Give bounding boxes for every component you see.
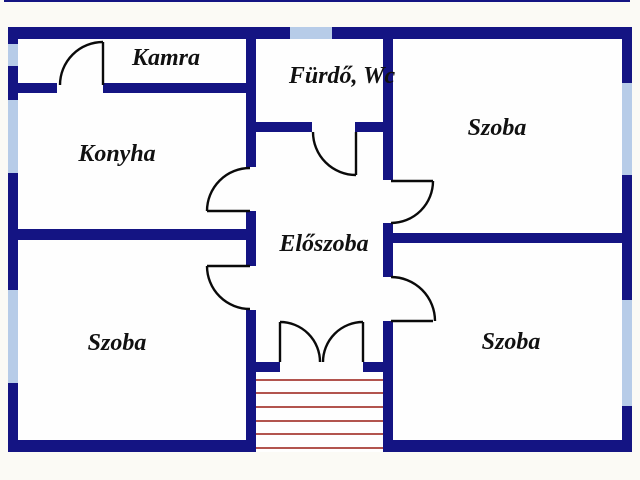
- wall-porch-stub-right: [363, 362, 383, 372]
- floor-plan: Kamra Fürdő, Wc Konyha Szoba Előszoba Sz…: [0, 0, 640, 480]
- window-szoba-bottom-left: [8, 290, 18, 383]
- outer-wall-bottom-left: [8, 440, 256, 452]
- window-konyha-left: [8, 100, 18, 173]
- window-szoba-bottom-right: [622, 300, 632, 406]
- wall-center-right-lower: [383, 321, 393, 452]
- wall-porch-stub-left: [256, 362, 280, 372]
- room-label-furdo-wc: Fürdő, Wc: [288, 63, 396, 89]
- window-kamra-left: [8, 44, 18, 66]
- room-label-szoba-bottom-left: Szoba: [88, 330, 147, 356]
- wall-furdo-bottom-left: [246, 122, 312, 132]
- room-label-konyha: Konyha: [77, 141, 155, 167]
- room-label-szoba-top-right: Szoba: [468, 115, 527, 141]
- window-furdo-top: [290, 27, 332, 39]
- window-szoba-top-right: [622, 83, 632, 175]
- wall-center-right-upper: [383, 39, 393, 180]
- wall-center-left-middle: [246, 211, 256, 266]
- room-label-kamra: Kamra: [131, 45, 200, 71]
- wall-right-rooms-divider: [393, 233, 622, 243]
- room-label-szoba-bottom-right: Szoba: [482, 329, 541, 355]
- wall-kamra-bottom-left: [8, 83, 57, 93]
- outer-wall-bottom-right: [383, 440, 632, 452]
- wall-center-left-upper: [246, 39, 256, 167]
- wall-konyha-szoba-divider: [8, 229, 246, 240]
- room-label-eloszoba: Előszoba: [278, 231, 368, 257]
- wall-center-right-middle: [383, 223, 393, 277]
- top-border-line: [4, 0, 630, 2]
- wall-kamra-bottom-right: [103, 83, 256, 93]
- wall-furdo-bottom-right: [355, 122, 393, 132]
- wall-center-left-lower: [246, 310, 256, 452]
